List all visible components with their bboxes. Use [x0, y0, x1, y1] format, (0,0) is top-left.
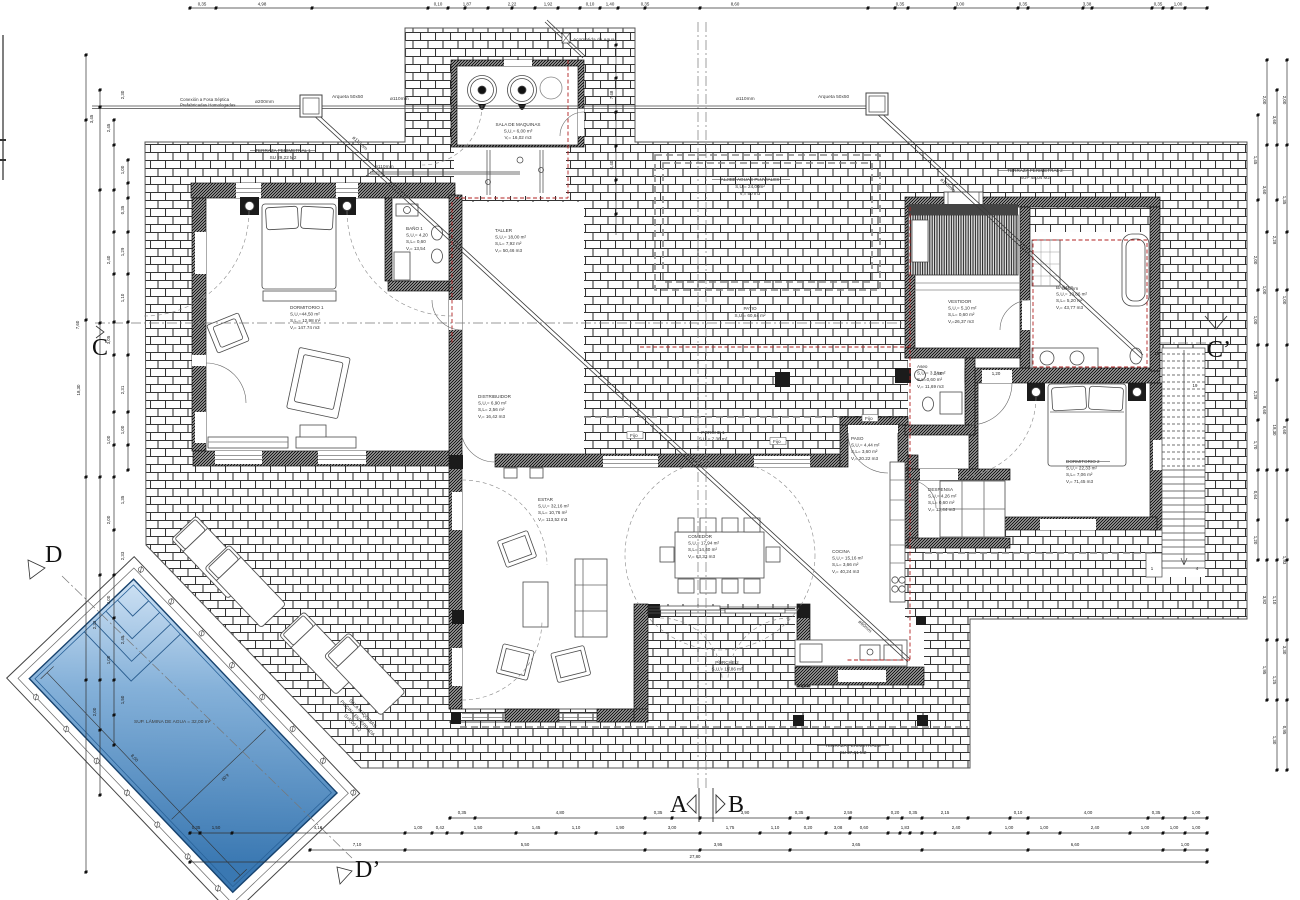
svg-text:1,50: 1,50 [474, 825, 483, 830]
svg-text:18,30: 18,30 [76, 384, 81, 396]
svg-text:6,60: 6,60 [1071, 842, 1080, 847]
svg-text:8,60: 8,60 [1262, 406, 1267, 415]
svg-text:ø110mm: ø110mm [390, 96, 409, 102]
svg-text:1,50: 1,50 [120, 695, 125, 704]
svg-text:8,60: 8,60 [1282, 426, 1287, 435]
svg-text:1,92: 1,92 [544, 2, 553, 7]
svg-text:S,L= 10,76 m²: S,L= 10,76 m² [538, 510, 567, 515]
svg-text:0,35: 0,35 [1154, 2, 1163, 7]
svg-text:S,U,= 13,86 m²: S,U,= 13,86 m² [1056, 292, 1087, 297]
svg-text:3,82: 3,82 [1262, 596, 1267, 605]
svg-text:S,L= 3,60 m²: S,L= 3,60 m² [851, 449, 878, 454]
svg-text:V,= 16,42 m3: V,= 16,42 m3 [478, 414, 505, 419]
svg-text:5,50: 5,50 [521, 842, 530, 847]
svg-text:COMEDOR: COMEDOR [688, 534, 713, 539]
svg-text:1,10: 1,10 [572, 825, 581, 830]
svg-text:1,00: 1,00 [1040, 825, 1049, 830]
svg-text:0,40: 0,40 [609, 160, 614, 169]
svg-text:S,L= 0,60 m²: S,L= 0,60 m² [928, 500, 955, 505]
svg-text:2,59: 2,59 [844, 810, 853, 815]
svg-text:Arqueta 50x50: Arqueta 50x50 [332, 94, 364, 100]
svg-text:4,98: 4,98 [258, 2, 267, 7]
svg-text:1,00: 1,00 [1170, 825, 1179, 830]
svg-text:Fijo: Fijo [773, 439, 781, 445]
svg-text:ø110mm: ø110mm [375, 164, 394, 170]
svg-text:2,40: 2,40 [952, 825, 961, 830]
svg-text:1,00: 1,00 [1192, 825, 1201, 830]
svg-text:0,35: 0,35 [1019, 2, 1028, 7]
svg-text:2,00: 2,00 [1253, 256, 1258, 265]
svg-text:S,U,= 4,20: S,U,= 4,20 [406, 233, 428, 238]
svg-text:0,10: 0,10 [1014, 810, 1023, 815]
svg-text:S,U,= 6,00 m³: S,U,= 6,00 m³ [504, 129, 533, 134]
svg-text:S,U,= 15,16 m²: S,U,= 15,16 m² [832, 556, 863, 561]
svg-text:1,29: 1,29 [120, 247, 125, 256]
svg-text:ø200mm: ø200mm [255, 99, 274, 105]
svg-text:S,L= 0,60: S,L= 0,60 [406, 239, 426, 244]
svg-text:0,35: 0,35 [192, 825, 201, 830]
svg-text:0,10: 0,10 [434, 2, 443, 7]
svg-text:1,10: 1,10 [771, 825, 780, 830]
svg-text:SALA DE MAQUINAS: SALA DE MAQUINAS [496, 122, 541, 127]
svg-text:20: 20 [1155, 351, 1160, 356]
svg-text:3,08: 3,08 [834, 825, 843, 830]
svg-text:4,80: 4,80 [556, 810, 565, 815]
svg-text:S,L= 2,56 m²: S,L= 2,56 m² [478, 407, 505, 412]
svg-text:S,L= 0,60 m²: S,L= 0,60 m² [948, 312, 975, 317]
svg-text:1,30: 1,30 [934, 371, 943, 376]
svg-text:Prefabricadas Homologadas: Prefabricadas Homologadas [180, 103, 236, 108]
svg-text:3,38: 3,38 [1083, 2, 1092, 7]
svg-text:V,= 50,46 m3: V,= 50,46 m3 [495, 248, 522, 253]
svg-text:1,00: 1,00 [1141, 825, 1150, 830]
svg-text:S,U,= 24,00m²: S,U,= 24,00m² [735, 184, 765, 189]
svg-text:1,10: 1,10 [120, 293, 125, 302]
svg-text:S,U,= 17,94 m²: S,U,= 17,94 m² [688, 541, 719, 546]
svg-text:A: A [670, 792, 688, 818]
svg-text:V,= 16,02 m3: V,= 16,02 m3 [504, 135, 531, 140]
svg-text:S,U,= 4,44 m²: S,U,= 4,44 m² [851, 443, 880, 448]
svg-text:BAÑO 1: BAÑO 1 [406, 225, 423, 231]
svg-text:1,93: 1,93 [1282, 556, 1287, 565]
svg-text:Fijo: Fijo [865, 416, 873, 422]
svg-text:V,= 50 m3: V,= 50 m3 [740, 191, 761, 196]
svg-text:SUP 48,04 M2: SUP 48,04 M2 [1020, 175, 1050, 180]
svg-text:0,95: 0,95 [1282, 726, 1287, 735]
svg-text:S,U,= 15,86 m²: S,U,= 15,86 m² [711, 667, 742, 672]
svg-text:2,30: 2,30 [120, 90, 125, 99]
svg-text:1,50: 1,50 [212, 825, 221, 830]
svg-text:2,28: 2,28 [1253, 391, 1258, 400]
svg-text:V,= 40,24 m3: V,= 40,24 m3 [832, 569, 859, 574]
svg-text:1,00: 1,00 [120, 165, 125, 174]
svg-text:19: 19 [1193, 383, 1198, 388]
svg-text:1,87: 1,87 [463, 2, 472, 7]
svg-text:PATIO: PATIO [743, 306, 757, 311]
svg-text:0,10: 0,10 [586, 2, 595, 7]
svg-text:0,20: 0,20 [804, 825, 813, 830]
svg-text:0,35: 0,35 [909, 810, 918, 815]
svg-text:2,31: 2,31 [120, 385, 125, 394]
svg-text:S,L= 3,66 m²: S,L= 3,66 m² [832, 562, 859, 567]
svg-text:1,00: 1,00 [1253, 316, 1258, 325]
svg-text:1,20: 1,20 [1253, 536, 1258, 545]
svg-text:1,20: 1,20 [992, 371, 1001, 376]
svg-text:0,35: 0,35 [641, 2, 650, 7]
svg-text:V,=26,37 m3: V,=26,37 m3 [948, 319, 974, 324]
svg-text:1,00: 1,00 [1174, 2, 1183, 7]
svg-text:0,35: 0,35 [654, 810, 663, 815]
svg-text:0,35: 0,35 [1152, 810, 1161, 815]
svg-text:1,35: 1,35 [120, 495, 125, 504]
svg-text:SU 29,22 M2: SU 29,22 M2 [270, 155, 297, 160]
svg-text:0,64: 0,64 [1253, 491, 1258, 500]
svg-text:2,45: 2,45 [120, 635, 125, 644]
svg-text:2,40: 2,40 [106, 255, 111, 264]
svg-text:2,00: 2,00 [1282, 96, 1287, 105]
svg-text:Acometida de Agua: Acometida de Agua [573, 37, 615, 43]
svg-text:DESPENSA: DESPENSA [928, 487, 954, 492]
svg-text:1,25: 1,25 [1272, 676, 1277, 685]
svg-text:2,00: 2,00 [1262, 96, 1267, 105]
svg-text:D: D [45, 542, 62, 568]
svg-text:S,L= 7,92 m²: S,L= 7,92 m² [495, 241, 522, 246]
svg-text:V,= 11,69 m3: V,= 11,69 m3 [917, 384, 944, 389]
svg-text:4,00: 4,00 [1084, 810, 1093, 815]
svg-text:1,35: 1,35 [1282, 196, 1287, 205]
svg-text:2,15: 2,15 [941, 810, 950, 815]
svg-text:C: C [92, 335, 108, 361]
svg-text:1,00: 1,00 [106, 435, 111, 444]
svg-text:V,= 147.74 m3: V,= 147.74 m3 [290, 325, 320, 330]
svg-text:SUP. LÁMINA DE AGUA = 32,00 m²: SUP. LÁMINA DE AGUA = 32,00 m² [134, 718, 211, 725]
svg-text:2,33: 2,33 [92, 620, 97, 629]
svg-text:S,U,= 32,16 m²: S,U,= 32,16 m² [538, 504, 569, 509]
svg-text:1,45: 1,45 [532, 825, 541, 830]
svg-text:SU 27,01 M2: SU 27,01 M2 [840, 750, 867, 755]
svg-text:S,L= 14,40 m²: S,L= 14,40 m² [688, 547, 717, 552]
svg-text:0,60: 0,60 [860, 825, 869, 830]
svg-text:3,60: 3,60 [1272, 116, 1277, 125]
svg-text:8,60: 8,60 [731, 2, 740, 7]
svg-text:3,45: 3,45 [89, 114, 94, 123]
svg-text:PORCHE 1: PORCHE 1 [701, 430, 725, 435]
svg-text:S,L= 5,20 m²: S,L= 5,20 m² [1056, 298, 1083, 303]
svg-text:3,95: 3,95 [714, 842, 723, 847]
svg-text:1,10: 1,10 [1272, 596, 1277, 605]
svg-text:1,00: 1,00 [414, 825, 423, 830]
svg-text:3,65: 3,65 [852, 842, 861, 847]
svg-text:7,60: 7,60 [75, 320, 80, 329]
svg-text:0,20: 0,20 [891, 810, 900, 815]
svg-text:S,U,= 6,90 m²: S,U,= 6,90 m² [478, 401, 507, 406]
svg-text:VESTIDOR: VESTIDOR [948, 299, 972, 304]
svg-text:S,U,= 5,10 m²: S,U,= 5,10 m² [948, 306, 977, 311]
svg-text:S,U,= 18,00 m²: S,U,= 18,00 m² [495, 235, 526, 240]
svg-text:1,00: 1,00 [1282, 296, 1287, 305]
svg-text:ø60mm: ø60mm [1062, 286, 1078, 292]
svg-text:1,00: 1,00 [1181, 842, 1190, 847]
svg-text:7,48: 7,48 [609, 90, 614, 99]
svg-text:3,30: 3,30 [1282, 646, 1287, 655]
svg-text:V,= 13,44 m3: V,= 13,44 m3 [928, 507, 955, 512]
svg-text:2,40: 2,40 [1091, 825, 1100, 830]
svg-text:1,00: 1,00 [106, 655, 111, 664]
svg-text:B: B [728, 792, 744, 818]
svg-text:ESTAR: ESTAR [538, 497, 554, 502]
svg-text:0,42: 0,42 [436, 825, 445, 830]
svg-text:1,00: 1,00 [1192, 810, 1201, 815]
svg-text:S,U,= 22,33 m²: S,U,= 22,33 m² [1066, 466, 1097, 471]
svg-text:0,35: 0,35 [795, 810, 804, 815]
svg-text:PASO: PASO [851, 436, 864, 441]
svg-text:Fijo: Fijo [630, 433, 638, 439]
svg-text:2,00: 2,00 [106, 515, 111, 524]
svg-text:1,45: 1,45 [1253, 156, 1258, 165]
svg-text:0,35: 0,35 [896, 2, 905, 7]
svg-text:1,83: 1,83 [901, 825, 910, 830]
svg-text:2,00: 2,00 [92, 707, 97, 716]
svg-text:C’: C’ [1207, 337, 1231, 363]
svg-text:4,00: 4,00 [106, 595, 111, 604]
svg-text:1,40: 1,40 [606, 2, 615, 7]
svg-text:DORMITORIO 1: DORMITORIO 1 [290, 305, 324, 310]
svg-text:S,U,= 60,64 m²: S,U,= 60,64 m² [734, 313, 765, 318]
svg-text:4,18: 4,18 [314, 825, 323, 830]
svg-text:2,22: 2,22 [508, 2, 517, 7]
svg-text:DISTRIBUIDOR: DISTRIBUIDOR [478, 394, 512, 399]
svg-text:Arqueta 50x50: Arqueta 50x50 [818, 94, 850, 100]
svg-text:3,00: 3,00 [668, 825, 677, 830]
svg-text:1,00: 1,00 [1005, 825, 1014, 830]
svg-text:1,70: 1,70 [1253, 441, 1258, 450]
svg-text:S,L=0,60 m²: S,L=0,60 m² [917, 377, 943, 382]
svg-text:S,U,=44,50 m²: S,U,=44,50 m² [290, 312, 320, 317]
svg-text:COCINA: COCINA [832, 549, 851, 554]
svg-text:S,L= 7,06 m²: S,L= 7,06 m² [1066, 472, 1093, 477]
svg-text:ø110mm: ø110mm [736, 96, 755, 102]
svg-text:2,28: 2,28 [1272, 236, 1277, 245]
svg-text:V,= 20.22 m3: V,= 20.22 m3 [851, 456, 878, 461]
svg-text:V,= 43,77 m3: V,= 43,77 m3 [1056, 305, 1083, 310]
svg-text:2,33: 2,33 [120, 551, 125, 560]
svg-text:0,35: 0,35 [198, 2, 207, 7]
svg-text:7,10: 7,10 [353, 842, 362, 847]
svg-text:S,L,= 12,98 m²: S,L,= 12,98 m² [290, 318, 321, 323]
svg-text:3,00: 3,00 [956, 2, 965, 7]
svg-text:0,35: 0,35 [120, 205, 125, 214]
svg-text:S,U,= 7,36 m²: S,U,= 7,36 m² [699, 437, 728, 442]
svg-text:18,30: 18,30 [1272, 425, 1277, 437]
svg-text:V,= 113,52 m3: V,= 113,52 m3 [538, 517, 568, 522]
svg-text:TALLER: TALLER [495, 228, 513, 233]
svg-text:3,60: 3,60 [1262, 186, 1267, 195]
svg-text:Aseo: Aseo [917, 364, 928, 369]
svg-text:D’: D’ [355, 857, 380, 883]
svg-text:2,45: 2,45 [106, 123, 111, 132]
svg-text:Conexión a Fosa Séptica: Conexión a Fosa Séptica [180, 97, 230, 102]
svg-text:1,00: 1,00 [120, 425, 125, 434]
svg-text:1,30: 1,30 [1272, 736, 1277, 745]
svg-text:1,95: 1,95 [1262, 666, 1267, 675]
svg-text:1,90: 1,90 [616, 825, 625, 830]
svg-text:1,00: 1,00 [1262, 286, 1267, 295]
svg-text:1,75: 1,75 [726, 825, 735, 830]
svg-text:0,35: 0,35 [458, 810, 467, 815]
svg-text:27,80: 27,80 [690, 854, 702, 859]
svg-text:V,= 63,33 m3: V,= 63,33 m3 [688, 554, 715, 559]
svg-text:V,= 13,54: V,= 13,54 [406, 246, 426, 251]
svg-text:V,= 71,45 m3: V,= 71,45 m3 [1066, 479, 1093, 484]
